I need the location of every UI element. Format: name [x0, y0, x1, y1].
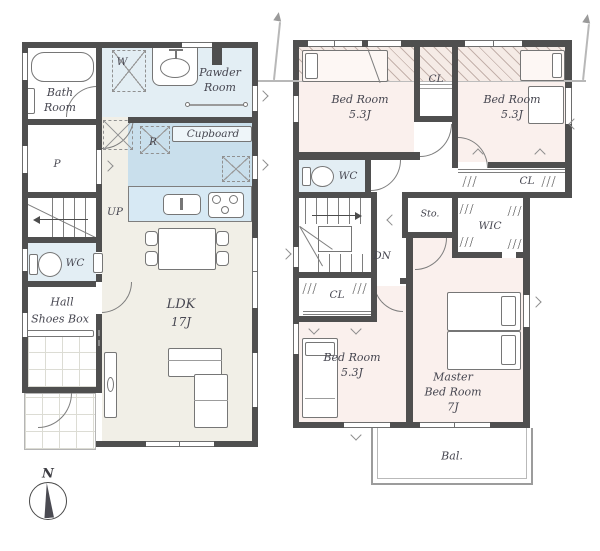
- window: [368, 40, 401, 47]
- toilet-tank: [29, 254, 38, 275]
- wall: [414, 116, 452, 122]
- wall-gap: [96, 282, 102, 314]
- window: [182, 42, 212, 48]
- sofa-seat: [168, 348, 222, 377]
- towel-bar-end-left: [185, 102, 190, 107]
- wall: [299, 316, 377, 322]
- hanger-marks: [507, 206, 522, 216]
- ldk-label: LDK 17J: [167, 296, 196, 330]
- wall: [22, 192, 102, 198]
- shoes-box-cabinet: [26, 330, 94, 337]
- dining-chair: [216, 251, 229, 266]
- dining-chair: [145, 231, 158, 246]
- wc1-label: WC: [66, 256, 85, 270]
- stairs-down-arrow-head: [355, 212, 362, 220]
- pantry-label: P: [53, 157, 60, 171]
- wall: [22, 281, 102, 287]
- bed-fold-line: [305, 398, 335, 399]
- window-divider: [493, 40, 494, 47]
- stairs-landing: [318, 226, 352, 252]
- wic-label: WIC: [479, 219, 502, 233]
- tv-board-knob: [107, 377, 114, 392]
- closet-left-track: [303, 311, 371, 315]
- wall: [22, 42, 28, 393]
- wall-stub: [212, 48, 222, 65]
- roof-arrow: [273, 11, 282, 21]
- bed-pillow: [501, 296, 516, 326]
- bedroom3-label: Bed Room 5.3J: [323, 351, 380, 381]
- window: [293, 247, 299, 267]
- hanger-marks: [507, 239, 522, 249]
- storage-label: Sto.: [421, 209, 440, 222]
- stairs-down-arrow-line: [312, 215, 356, 216]
- entrance-tile-floor: [28, 336, 96, 387]
- pantry-sliding-opening: [96, 150, 102, 184]
- stove-burner-2: [229, 195, 238, 204]
- wall: [22, 42, 258, 48]
- compass-north-label: N: [42, 467, 54, 482]
- wall: [299, 152, 420, 160]
- vanity-basin: [160, 58, 190, 78]
- wall: [299, 272, 377, 278]
- roof-outline-line: [258, 80, 299, 82]
- hanger-marks: [462, 176, 479, 187]
- wc-door-leaf: [93, 253, 103, 273]
- wall: [22, 387, 102, 393]
- vent-chevron: [280, 248, 291, 259]
- dining-chair: [216, 231, 229, 246]
- toilet-bowl: [38, 252, 62, 277]
- wc2-door-arc: [371, 160, 401, 191]
- kitchen-storage-box: [222, 156, 250, 182]
- stairs-up-label: UP: [107, 205, 123, 219]
- hall-label: Hall: [50, 296, 73, 311]
- vent-chevron: [257, 90, 268, 101]
- dining-table: [158, 228, 216, 270]
- stove-burner-3: [221, 206, 229, 214]
- stairs-down-treads-bottom: [318, 254, 371, 272]
- window: [293, 324, 299, 354]
- wc2-label: WC: [339, 169, 358, 183]
- closet-left-label: CL: [329, 288, 344, 302]
- wall: [452, 192, 458, 258]
- toilet-tank: [302, 167, 311, 186]
- roof-outline-stub: [582, 24, 589, 80]
- kitchen-faucet: [180, 198, 183, 210]
- window-divider: [334, 40, 335, 47]
- floor-plan-canvas: Bath Room W Pawder Room Cupboard R P UP …: [0, 0, 600, 551]
- closet-mid-label: CL: [428, 72, 443, 86]
- wall: [406, 238, 413, 422]
- roof-outline-stub: [273, 22, 281, 80]
- hanger-marks: [541, 176, 558, 187]
- towel-bar: [188, 104, 244, 106]
- sofa-chaise: [194, 374, 228, 428]
- balcony-label: Bal.: [441, 450, 463, 465]
- stairs-down-treads-top: [305, 198, 371, 224]
- master-bedroom-label: Master Bed Room 7J: [424, 371, 481, 416]
- window: [22, 249, 28, 271]
- bed-pillow: [552, 53, 562, 78]
- wall: [452, 47, 458, 168]
- vent-chevron: [257, 159, 268, 170]
- vanity-faucet-stem: [175, 49, 177, 59]
- window: [252, 238, 258, 308]
- window: [22, 146, 28, 173]
- bedroom2-label: Bed Room 5.3J: [483, 93, 540, 123]
- washroom-floor-hatch-box: [103, 120, 133, 150]
- toilet-bowl: [311, 166, 334, 187]
- roof-outline-line: [565, 80, 586, 82]
- bedroom1-label: Bed Room 5.3J: [331, 93, 388, 123]
- hall-sliding-door-dashed: [98, 330, 100, 346]
- window: [293, 96, 299, 122]
- shoes-box-label: Shoes Box: [31, 313, 89, 328]
- bed-pillow: [305, 53, 318, 79]
- wall: [299, 192, 377, 198]
- wall: [402, 192, 530, 198]
- stairs-up-arrow-head: [33, 216, 40, 224]
- hanger-marks: [302, 283, 319, 294]
- sofa-seat-line: [168, 360, 222, 361]
- window: [22, 53, 28, 80]
- hanger-marks: [352, 283, 369, 294]
- wall: [128, 117, 258, 123]
- roof-arrow: [582, 13, 591, 23]
- bathtub: [31, 52, 94, 82]
- window-divider: [179, 441, 180, 447]
- wall: [414, 47, 420, 122]
- wall: [452, 252, 502, 258]
- storage-door-chevron: [386, 214, 397, 225]
- stove-burner-1: [212, 195, 221, 204]
- window: [252, 353, 258, 407]
- window: [252, 86, 258, 111]
- window: [523, 295, 530, 327]
- vent-chevron: [530, 296, 541, 307]
- towel-bar-end-right: [243, 102, 248, 107]
- wall: [516, 252, 530, 258]
- window: [565, 88, 572, 124]
- dining-chair: [145, 251, 158, 266]
- hanger-marks: [459, 237, 474, 247]
- closet-right-track: [458, 169, 565, 173]
- stairs-up-arrow-line: [40, 219, 88, 220]
- window-divider: [252, 271, 258, 272]
- bathroom-label: Bath Room: [44, 86, 76, 116]
- bed-pillow: [501, 335, 516, 365]
- bedroom1-door-arc: [420, 124, 452, 157]
- fridge-label: R: [149, 135, 157, 149]
- window: [22, 313, 28, 337]
- stairs-down-label: DN: [373, 249, 391, 263]
- wall: [22, 119, 96, 125]
- wall: [488, 162, 572, 168]
- sofa-chaise-line: [194, 400, 228, 401]
- window: [252, 156, 258, 179]
- hanger-marks: [459, 204, 474, 214]
- compass: N: [26, 464, 72, 526]
- closet-shelf-line: [420, 88, 452, 89]
- washer-label: W: [117, 55, 128, 69]
- wall: [365, 160, 371, 192]
- cupboard-label: Cupboard: [187, 127, 240, 141]
- vent-chevron: [350, 429, 361, 440]
- wall-stub: [400, 278, 406, 284]
- wall: [22, 237, 102, 243]
- closet-right-label: CL: [519, 174, 534, 188]
- powder-room-label: Pawder Room: [199, 66, 241, 96]
